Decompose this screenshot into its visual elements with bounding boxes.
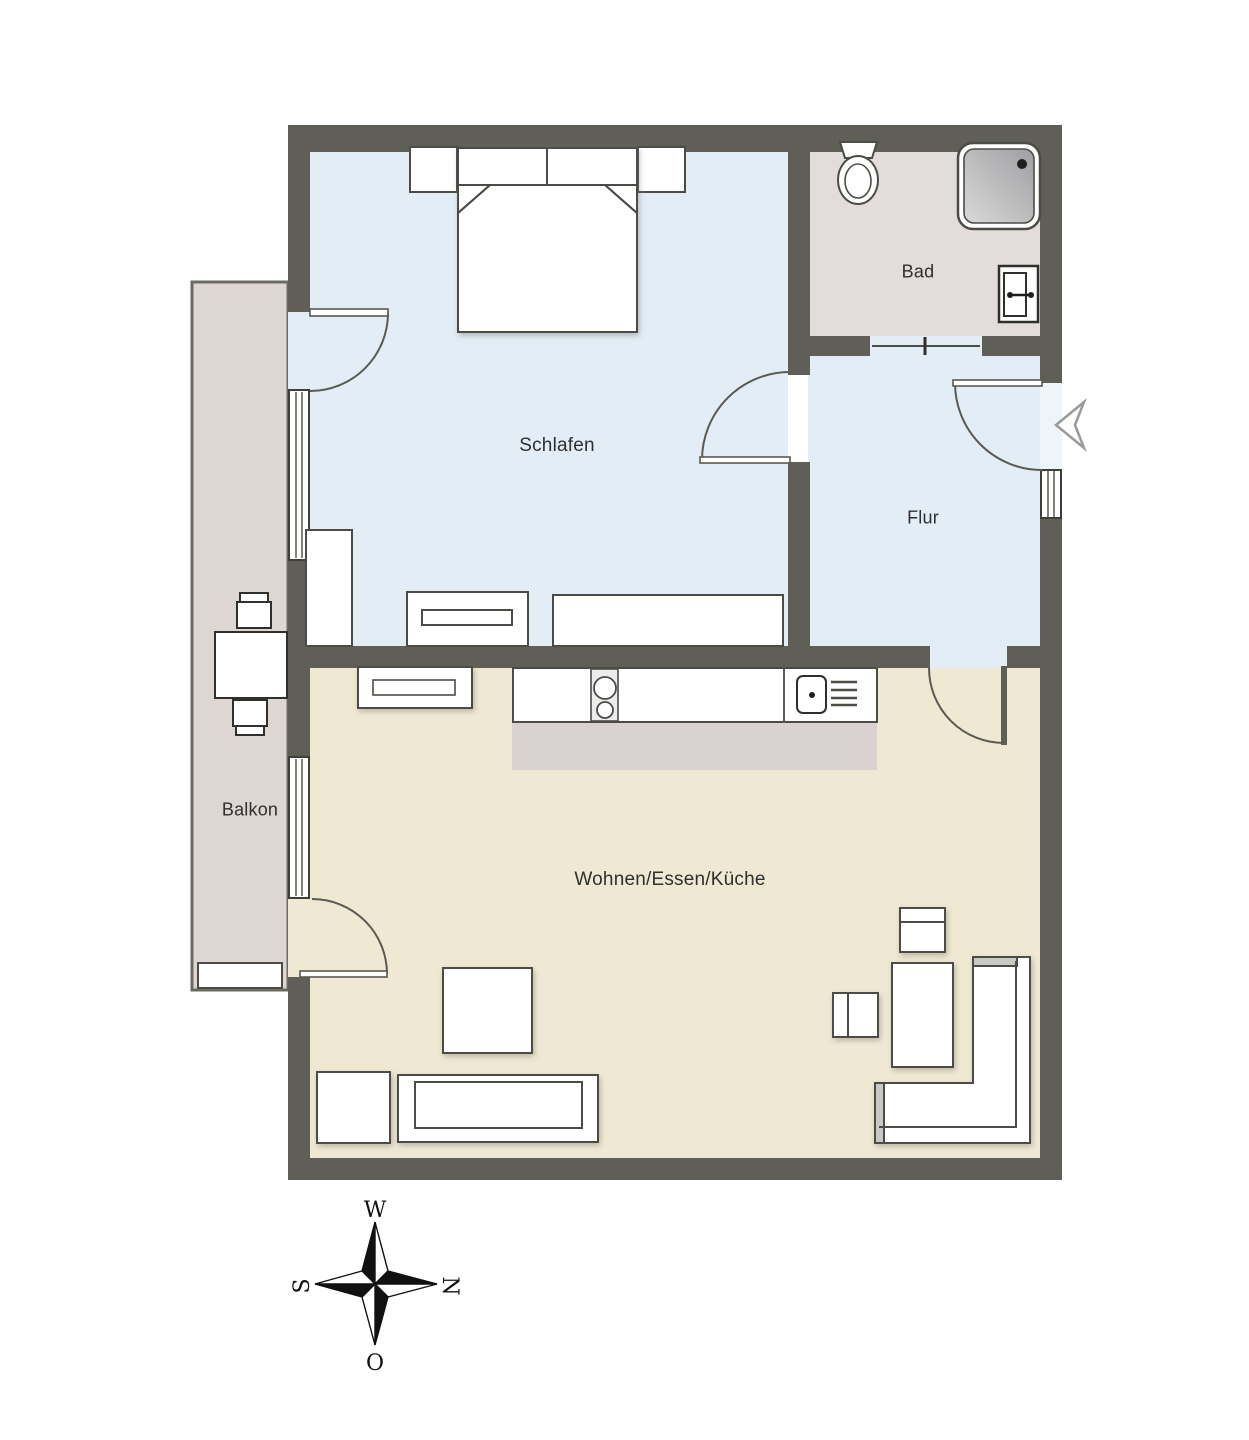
sink-drain-icon bbox=[809, 692, 815, 698]
room-label-flur: Flur bbox=[907, 508, 939, 529]
room-label-balkon: Balkon bbox=[222, 800, 278, 821]
planter-bench bbox=[198, 963, 282, 988]
nightstand-left bbox=[410, 147, 457, 192]
wall-hall-bedroom-lower bbox=[788, 462, 810, 646]
wall-hall-bedroom-upper bbox=[788, 356, 810, 375]
wall-right-upper bbox=[1040, 125, 1062, 383]
hall-floor bbox=[808, 356, 1040, 646]
wall-bath-left bbox=[788, 150, 810, 336]
coffee-table-2 bbox=[892, 963, 953, 1067]
compass-east-label: O bbox=[366, 1351, 384, 1376]
wall-bath-bottom-right bbox=[982, 336, 1040, 356]
balcony-table bbox=[215, 632, 287, 698]
double-bed bbox=[458, 148, 637, 332]
cooktop bbox=[591, 669, 618, 721]
burner-small bbox=[597, 702, 613, 718]
sofa-seat bbox=[415, 1082, 582, 1128]
square-table bbox=[317, 1072, 390, 1143]
balcony-chair-top bbox=[237, 593, 271, 628]
living-balcony-door-gap bbox=[288, 899, 310, 977]
sideboard bbox=[358, 667, 472, 708]
dresser-drawer bbox=[422, 610, 512, 625]
room-label-bad: Bad bbox=[902, 262, 935, 283]
wardrobe bbox=[306, 530, 352, 646]
sideboard-low bbox=[553, 595, 783, 646]
hall-living-door-gap bbox=[930, 646, 1007, 668]
bedroom-balcony-door-gap bbox=[288, 312, 310, 392]
wall-left-upper bbox=[288, 125, 310, 312]
nightstand-right bbox=[638, 147, 685, 192]
compass-north-label: N bbox=[437, 1276, 462, 1295]
balcony-chair-bottom bbox=[233, 700, 267, 735]
wall-bedroom-living bbox=[288, 646, 930, 668]
wash-basin bbox=[999, 266, 1038, 322]
toilet bbox=[838, 142, 878, 204]
wall-bottom bbox=[288, 1158, 1062, 1180]
shower bbox=[958, 143, 1040, 229]
wall-hall-living-stub bbox=[1007, 646, 1040, 668]
entrance-side-window bbox=[1041, 470, 1061, 518]
room-label-schlafen: Schlafen bbox=[519, 435, 595, 457]
pillow-right bbox=[547, 148, 637, 185]
side-table bbox=[833, 993, 878, 1037]
corner-sofa-armrest-cap-top bbox=[973, 957, 1017, 966]
room-label-wohnen: Wohnen/Essen/Küche bbox=[574, 869, 765, 891]
coffee-table bbox=[443, 968, 532, 1053]
sofa bbox=[398, 1075, 598, 1142]
kitchen-counter bbox=[513, 668, 877, 722]
wall-bath-bottom-left bbox=[788, 336, 870, 356]
pillow-left bbox=[458, 148, 547, 185]
dresser bbox=[407, 592, 528, 646]
armchair bbox=[900, 908, 945, 952]
compass-west-label: W bbox=[364, 1198, 387, 1223]
wall-right-lower bbox=[1040, 518, 1062, 1158]
burner-large bbox=[594, 677, 616, 699]
shower-drain-icon bbox=[1017, 159, 1027, 169]
bed-mattress bbox=[458, 185, 637, 332]
floorplan-page: W N O S Schlafen Bad Flur Wohnen/Essen/K… bbox=[0, 0, 1249, 1440]
floorplan-drawing: W N O S bbox=[0, 0, 1249, 1440]
compass-south-label: S bbox=[290, 1278, 315, 1293]
living-window bbox=[289, 757, 309, 898]
compass-star-icon bbox=[315, 1222, 437, 1345]
compass-rose: W N O S bbox=[290, 1198, 462, 1376]
corner-sofa-armrest-cap-left bbox=[875, 1083, 884, 1143]
wall-left-lower bbox=[288, 977, 310, 1180]
